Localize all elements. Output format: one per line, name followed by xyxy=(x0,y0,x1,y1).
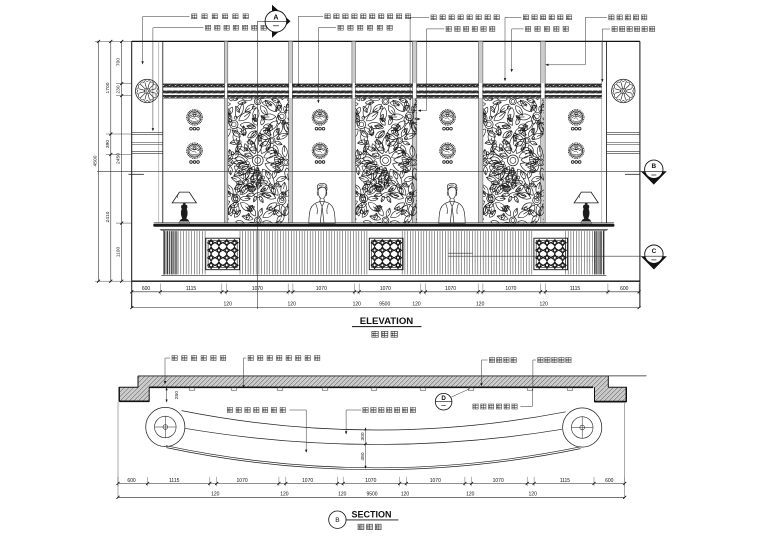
svg-text:B: B xyxy=(335,517,340,524)
svg-text:600: 600 xyxy=(127,478,136,484)
svg-text:C: C xyxy=(652,248,657,255)
svg-text:1070: 1070 xyxy=(493,478,504,484)
svg-text:B: B xyxy=(651,163,656,170)
svg-text:1070: 1070 xyxy=(252,286,263,292)
svg-text:300: 300 xyxy=(360,432,366,440)
svg-text:120: 120 xyxy=(211,491,220,497)
svg-text:1070: 1070 xyxy=(430,478,441,484)
svg-text:600: 600 xyxy=(605,478,614,484)
svg-text:1115: 1115 xyxy=(560,478,571,484)
svg-text:1070: 1070 xyxy=(365,478,376,484)
svg-text:1700: 1700 xyxy=(105,82,111,93)
svg-text:120: 120 xyxy=(476,301,485,307)
svg-text:700: 700 xyxy=(116,58,122,66)
svg-text:D: D xyxy=(441,395,446,402)
svg-text:1070: 1070 xyxy=(380,286,391,292)
svg-text:1070: 1070 xyxy=(237,478,248,484)
svg-text:230: 230 xyxy=(116,85,122,93)
svg-text:120: 120 xyxy=(288,301,297,307)
svg-text:1115: 1115 xyxy=(169,478,180,484)
svg-text:ELEVATION: ELEVATION xyxy=(360,316,414,327)
svg-text:2410: 2410 xyxy=(105,211,111,222)
svg-text:1115: 1115 xyxy=(186,286,197,292)
svg-text:SECTION: SECTION xyxy=(351,509,391,519)
svg-text:2450: 2450 xyxy=(116,153,122,164)
svg-text:390: 390 xyxy=(105,140,111,148)
svg-text:1070: 1070 xyxy=(316,286,327,292)
svg-text:1070: 1070 xyxy=(445,286,456,292)
svg-text:120: 120 xyxy=(353,301,362,307)
svg-text:A: A xyxy=(273,15,278,22)
svg-text:120: 120 xyxy=(338,491,347,497)
svg-text:120: 120 xyxy=(280,491,289,497)
svg-text:120: 120 xyxy=(401,491,410,497)
svg-text:1070: 1070 xyxy=(302,478,313,484)
svg-text:600: 600 xyxy=(142,286,151,292)
svg-text:9500: 9500 xyxy=(366,491,377,497)
svg-text:120: 120 xyxy=(412,301,421,307)
svg-text:250: 250 xyxy=(174,391,180,399)
svg-text:1115: 1115 xyxy=(570,286,581,292)
svg-text:600: 600 xyxy=(620,286,629,292)
svg-text:4500: 4500 xyxy=(93,155,99,166)
svg-text:120: 120 xyxy=(224,301,233,307)
svg-text:1070: 1070 xyxy=(505,286,516,292)
svg-text:450: 450 xyxy=(360,452,366,460)
svg-text:1100: 1100 xyxy=(116,246,122,257)
svg-text:120: 120 xyxy=(529,491,538,497)
svg-text:120: 120 xyxy=(540,301,549,307)
svg-text:9500: 9500 xyxy=(379,301,390,307)
svg-text:120: 120 xyxy=(466,491,475,497)
